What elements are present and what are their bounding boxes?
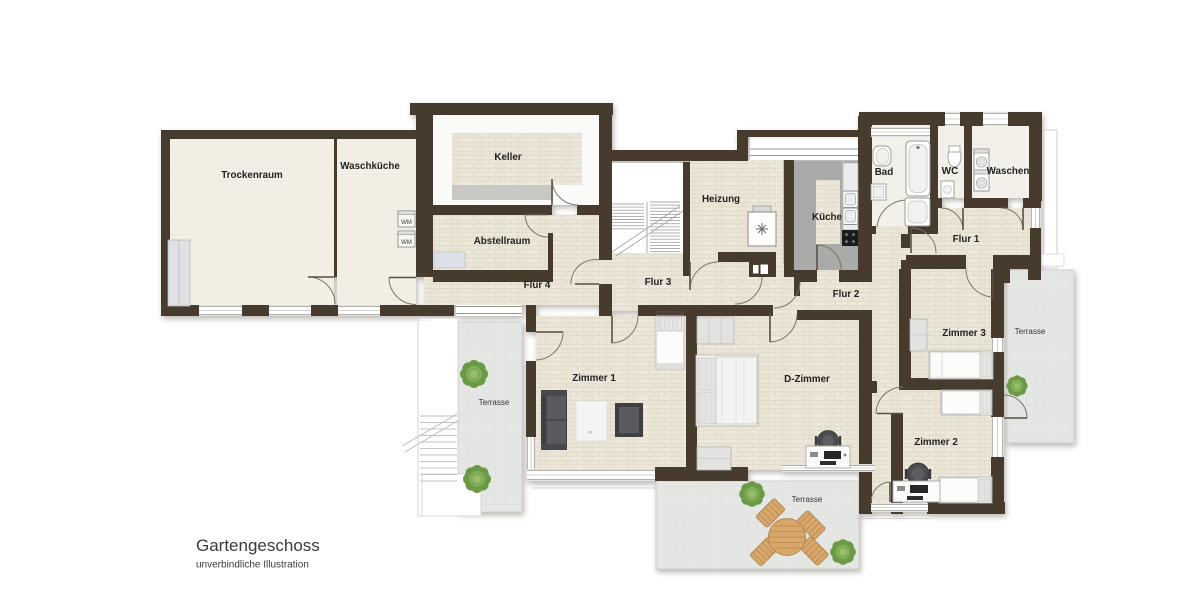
svg-text:Terrasse: Terrasse (1015, 327, 1046, 336)
svg-text:››: ›› (588, 430, 592, 436)
svg-text:unverbindliche Illustration: unverbindliche Illustration (196, 560, 309, 571)
svg-text:Abstellraum: Abstellraum (474, 236, 531, 247)
svg-text:Heizung: Heizung (702, 194, 740, 205)
svg-text:Flur 1: Flur 1 (953, 234, 980, 245)
svg-text:Flur 4: Flur 4 (524, 280, 551, 291)
svg-text:Trockenraum: Trockenraum (221, 170, 283, 181)
svg-text:Küche: Küche (812, 212, 842, 223)
svg-text:WC: WC (942, 166, 959, 177)
svg-text:WM: WM (401, 240, 412, 246)
svg-text:WM: WM (401, 220, 412, 226)
svg-text:Bad: Bad (875, 167, 894, 178)
svg-text:Waschküche: Waschküche (340, 161, 400, 172)
svg-text:Flur 3: Flur 3 (645, 277, 672, 288)
svg-text:Gartengeschoss: Gartengeschoss (196, 536, 320, 555)
svg-text:Keller: Keller (494, 152, 521, 163)
svg-text:Flur 2: Flur 2 (833, 289, 860, 300)
svg-text:D-Zimmer: D-Zimmer (784, 374, 830, 385)
svg-text:Zimmer 1: Zimmer 1 (572, 373, 616, 384)
svg-text:Terrasse: Terrasse (792, 495, 823, 504)
svg-text:Waschen: Waschen (987, 166, 1030, 177)
svg-text:Zimmer 2: Zimmer 2 (914, 437, 958, 448)
svg-text:Zimmer 3: Zimmer 3 (942, 328, 986, 339)
svg-text:Terrasse: Terrasse (479, 398, 510, 407)
